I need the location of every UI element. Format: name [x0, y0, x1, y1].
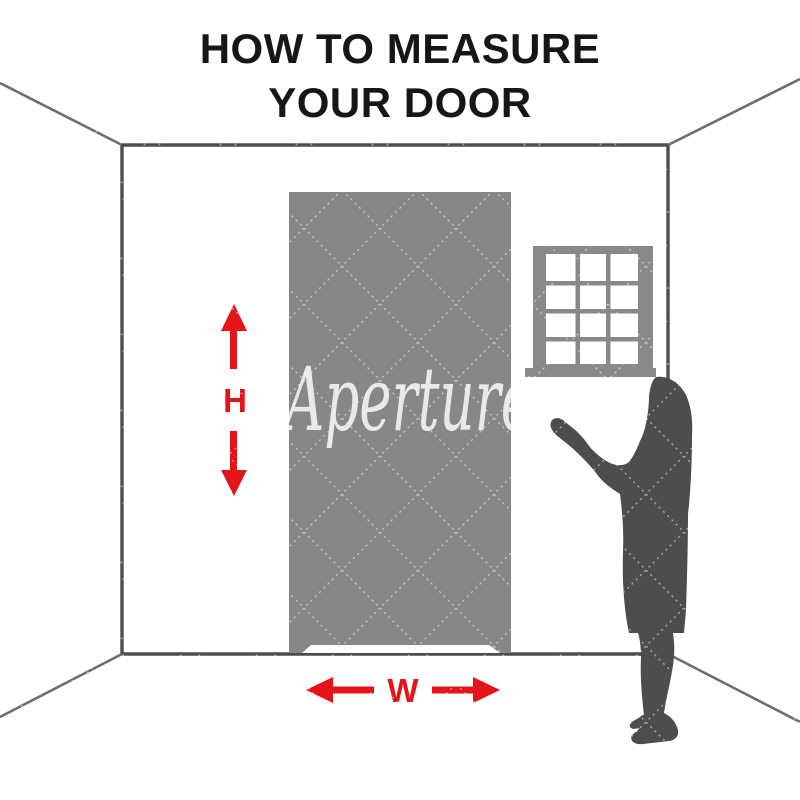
floor-corner-left-line: [0, 654, 122, 717]
watermark-text: Aperture: [281, 348, 533, 451]
person-body: [550, 377, 692, 633]
width-arrow-left-icon: [306, 677, 374, 703]
person-silhouette: [550, 377, 692, 744]
ceiling-corner-left-line: [0, 83, 122, 145]
ceiling-corner-right-line: [668, 79, 800, 145]
width-arrow-right-icon: [432, 677, 500, 703]
height-measurement: H: [221, 304, 247, 496]
window: [525, 246, 656, 377]
how-to-measure-door-page: { "title": { "line1": "HOW TO MEASURE", …: [0, 0, 800, 800]
height-arrow-up-icon: [221, 304, 247, 369]
person-back-shoe: [630, 710, 655, 729]
height-label: H: [223, 382, 247, 419]
height-arrow-down-icon: [221, 431, 247, 496]
width-measurement: W: [306, 672, 500, 709]
floor-corner-right-line: [668, 654, 800, 722]
door-threshold-gap: [302, 645, 500, 653]
window-sill: [525, 368, 656, 377]
measure-door-illustration: Aperture H: [0, 0, 800, 800]
width-label: W: [387, 672, 419, 709]
